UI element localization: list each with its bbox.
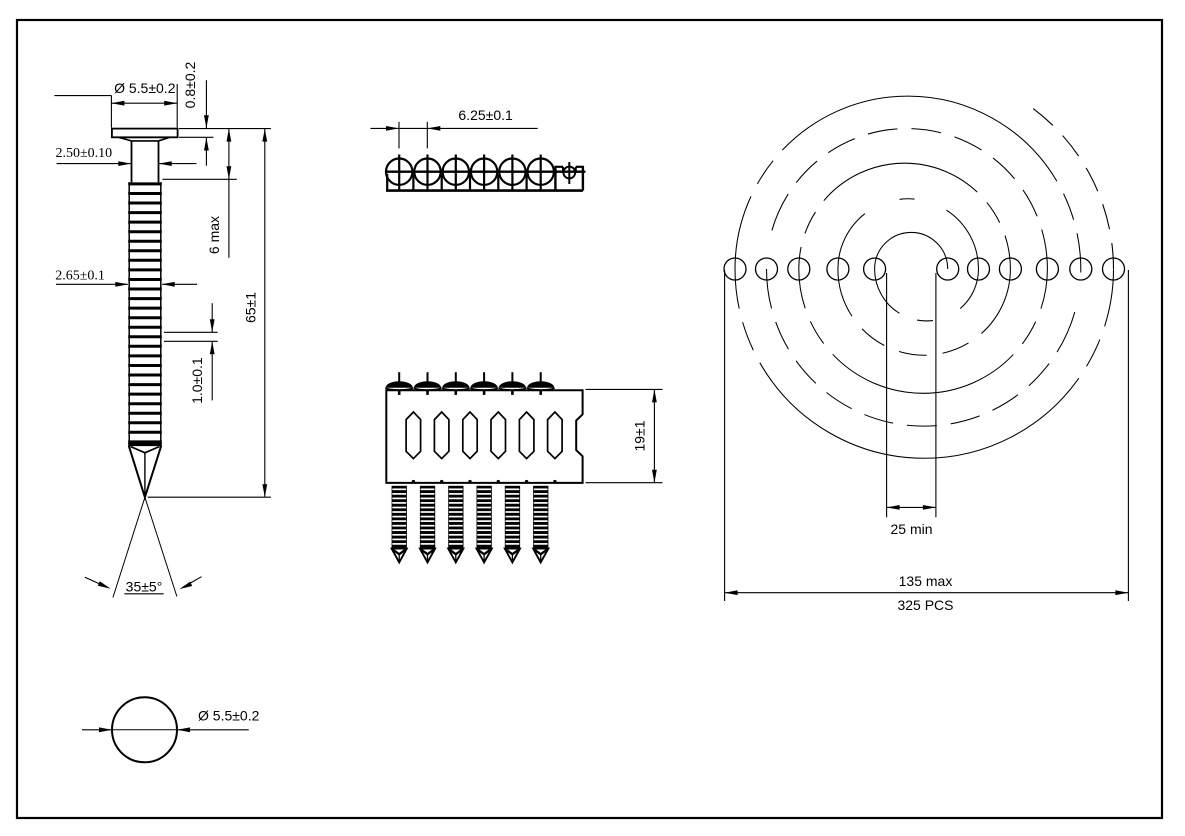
svg-text:Ø 5.5±0.2: Ø 5.5±0.2 (114, 80, 176, 96)
svg-text:325 PCS: 325 PCS (897, 597, 953, 613)
svg-text:6 max: 6 max (206, 216, 222, 254)
svg-text:2.50±0.10: 2.50±0.10 (56, 146, 113, 161)
svg-text:19±1: 19±1 (632, 420, 648, 451)
svg-text:65±1: 65±1 (243, 292, 259, 323)
svg-text:Ø 5.5±0.2: Ø 5.5±0.2 (198, 708, 260, 724)
svg-text:1.0±0.1: 1.0±0.1 (189, 357, 205, 404)
svg-text:35±5°: 35±5° (126, 579, 163, 595)
svg-text:0.8±0.2: 0.8±0.2 (182, 61, 198, 108)
svg-text:135 max: 135 max (899, 573, 953, 589)
svg-text:2.65±0.1: 2.65±0.1 (55, 269, 105, 284)
svg-text:25 min: 25 min (890, 521, 932, 537)
svg-text:6.25±0.1: 6.25±0.1 (458, 107, 513, 123)
